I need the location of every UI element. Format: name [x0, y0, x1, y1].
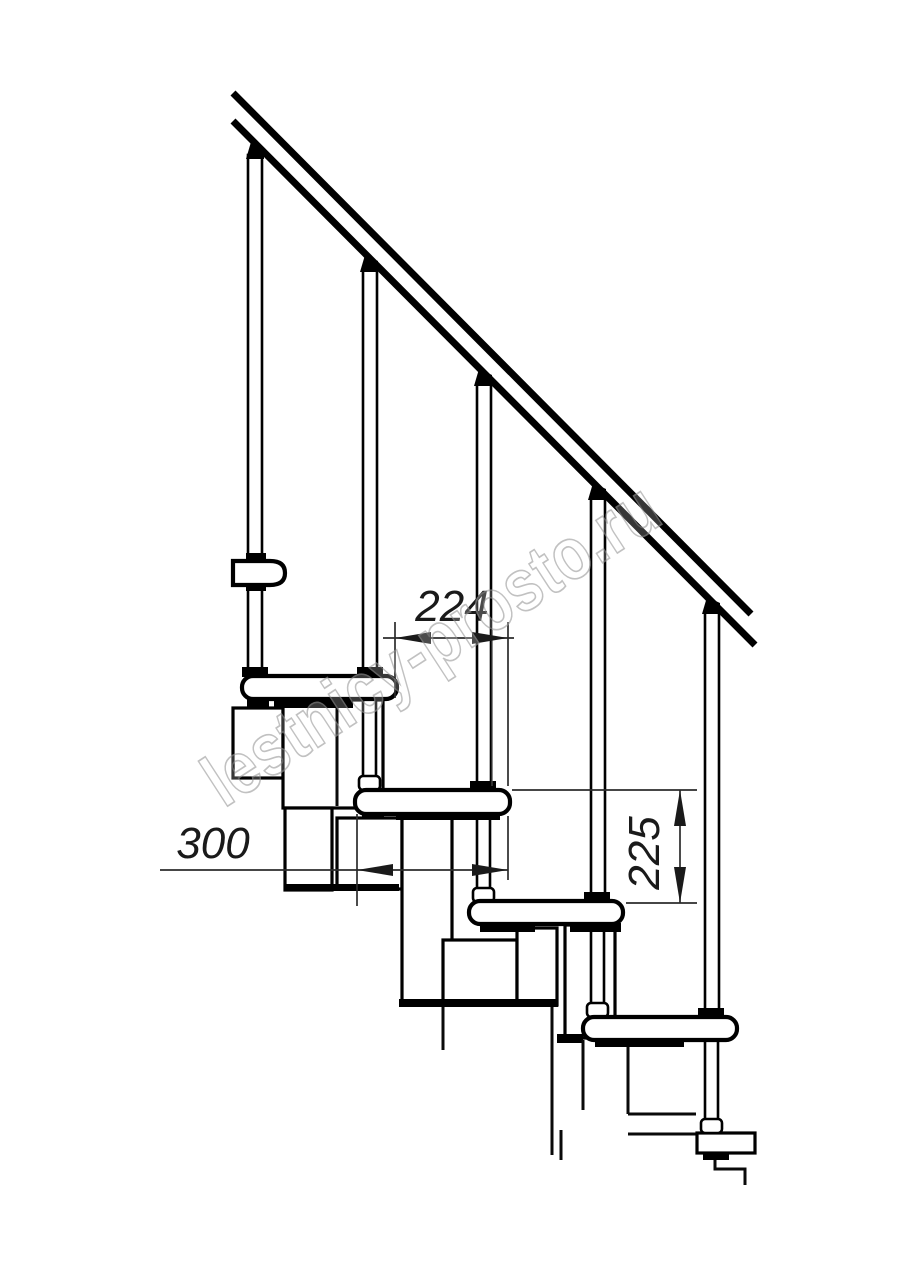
rod-3	[591, 924, 604, 1009]
top-bracket-body	[233, 561, 285, 585]
top-bracket-lower-connector	[246, 584, 266, 591]
arrow-down-icon	[674, 867, 686, 903]
baluster-1	[248, 155, 262, 675]
dimension-tread-depth-300: 300	[160, 814, 508, 906]
module-base-strip-4	[557, 1034, 583, 1043]
module-clamp-2	[285, 808, 332, 890]
rod-2	[477, 812, 490, 897]
staircase-drawing-page: 224 300 225 lestnicy-prosto.ru	[0, 0, 914, 1280]
arrow-up-icon	[674, 790, 686, 826]
module-clamp-3	[517, 928, 557, 1005]
floor-mount-module	[697, 1133, 755, 1185]
tread-2	[355, 790, 510, 814]
tread-4	[583, 1017, 737, 1040]
baluster-2	[363, 268, 377, 675]
baluster-5	[705, 610, 719, 1016]
tread-3	[469, 901, 623, 924]
module-block-2	[337, 818, 402, 889]
stringer-modules	[233, 700, 755, 1185]
module-base-strip-2	[286, 884, 399, 891]
module-block-3	[443, 940, 517, 1003]
module-base-strip-3	[399, 999, 558, 1007]
dimension-label-rise: 225	[620, 816, 669, 891]
staircase-technical-drawing: 224 300 225 lestnicy-prosto.ru	[0, 0, 914, 1280]
top-bracket-upper-connector	[246, 553, 266, 562]
rod-4-foot	[701, 1119, 722, 1133]
dimension-label-tread-depth: 300	[176, 819, 250, 868]
rod-4	[705, 1040, 718, 1125]
top-bracket	[233, 553, 285, 591]
